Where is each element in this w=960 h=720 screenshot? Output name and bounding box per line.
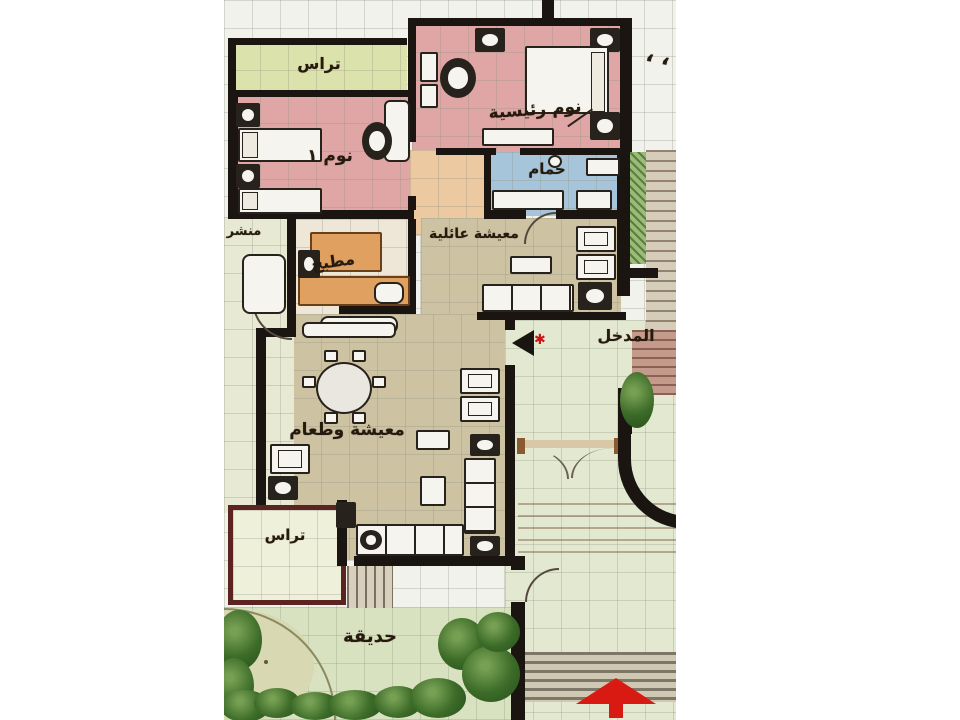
sofa-three-seat [482, 284, 574, 312]
entrance-door-lintel [521, 440, 618, 448]
wall-master-right [620, 18, 632, 152]
lamp [586, 289, 604, 303]
closet-detail [597, 119, 613, 133]
living-dining-label: معيشة وطعام [274, 420, 420, 440]
bedroom1-label: نوم ١ [282, 146, 378, 166]
bed-pillow [242, 132, 258, 158]
nightstand-knob [242, 170, 254, 182]
wall-shelf [420, 84, 438, 108]
wall-hall-jamb [408, 196, 416, 210]
entrance-label: المدخل [580, 326, 672, 345]
sofa-vertical [464, 458, 496, 534]
wall-terrace-bedroom1 [232, 90, 412, 97]
wall-living-left [256, 330, 266, 505]
dining-chair [324, 350, 338, 362]
bush [462, 646, 520, 702]
dining-table [316, 362, 372, 414]
terrace-top-label: تراس [274, 54, 364, 73]
armchair-cushion [584, 260, 608, 274]
coffee-table [510, 256, 552, 274]
wall-garden-jamb [511, 556, 525, 570]
terrace-bottom-region [228, 505, 346, 605]
side-table [470, 434, 500, 456]
wall-living-right-b [505, 365, 515, 560]
dining-chair [302, 376, 316, 388]
round-stool-top [366, 535, 377, 545]
side-table-top [477, 440, 493, 451]
laundry-label: منشر [224, 224, 278, 239]
sideboard [302, 322, 396, 338]
entry-star-marker: ✱ [534, 332, 546, 348]
garden-stone [264, 660, 268, 664]
armchair [460, 368, 500, 394]
wall-kitchen-bottom [339, 306, 416, 314]
bathroom-sink [586, 158, 620, 176]
bush [476, 612, 520, 652]
cropped-text-fragment: ، ، [636, 42, 676, 72]
terrace-steps [347, 566, 393, 608]
climbing-plant [620, 372, 654, 428]
bed-pillow [242, 192, 258, 210]
side-table [470, 536, 500, 556]
dining-chair [372, 376, 386, 388]
armchair [270, 444, 310, 474]
wall-bath-top-b [520, 148, 624, 155]
side-table [268, 476, 298, 500]
closet-detail [482, 34, 498, 46]
wall-bath-left [484, 152, 491, 216]
entrance-door-jamb-left [517, 438, 525, 454]
entrance-arrow-stem [609, 704, 623, 718]
garden-label: حديقة [320, 626, 420, 647]
dining-chair [352, 350, 366, 362]
vanity-mirror-glass [448, 67, 467, 89]
bathtub [492, 190, 564, 210]
toilet [576, 190, 612, 210]
nightstand [236, 164, 260, 188]
wall-family-bottom [477, 312, 626, 320]
entry-direction-marker [512, 330, 534, 356]
laundry-basin [242, 254, 286, 314]
wall-living-bottom [354, 556, 515, 566]
family-living-label: معيشة عائلية [416, 226, 532, 242]
armchair-cushion [468, 402, 492, 416]
wall-family-right [617, 218, 630, 296]
bush [410, 678, 466, 718]
closet-unit [590, 112, 620, 140]
round-stool [360, 530, 382, 550]
armchair [460, 396, 500, 422]
wall-court-arm [630, 268, 658, 278]
center-table [420, 476, 446, 506]
closet-unit [475, 28, 505, 52]
armchair [576, 254, 616, 280]
wall-shelf [420, 52, 438, 82]
bathroom-label: حمام [512, 160, 582, 178]
armchair-cushion [584, 232, 608, 246]
floor-plan-page: ✱ تراس نوم ١ نوم رئيسية حمام مطبخ معيشة … [0, 0, 960, 720]
lamp-table [578, 282, 612, 310]
armchair-cushion [278, 450, 302, 468]
entrance-arrow [576, 678, 656, 704]
center-table [416, 430, 450, 450]
terrace-bottom-label: تراس [250, 526, 320, 544]
nightstand [236, 103, 260, 127]
wall-terrace-left [228, 38, 236, 96]
side-table-top [477, 541, 493, 551]
wall-bath-bottom-a [484, 210, 526, 219]
closet-detail [597, 34, 613, 46]
armchair-cushion [468, 374, 492, 388]
side-table-top [275, 482, 291, 494]
wall-top-stub [542, 0, 554, 20]
nightstand-knob [242, 109, 254, 121]
stove [374, 282, 404, 304]
bed-single-2 [238, 188, 322, 214]
wall-master-bottom [436, 148, 486, 155]
vanity-mirror [440, 58, 476, 98]
wall-master-top [408, 18, 632, 26]
dresser [482, 128, 554, 146]
wall-living-right-a [505, 312, 515, 330]
corner-table [336, 502, 356, 528]
planter-strip [630, 152, 646, 264]
floor-plan-image: ✱ تراس نوم ١ نوم رئيسية حمام مطبخ معيشة … [224, 0, 676, 720]
armchair [576, 226, 616, 252]
wall-terrace-top [232, 38, 407, 45]
